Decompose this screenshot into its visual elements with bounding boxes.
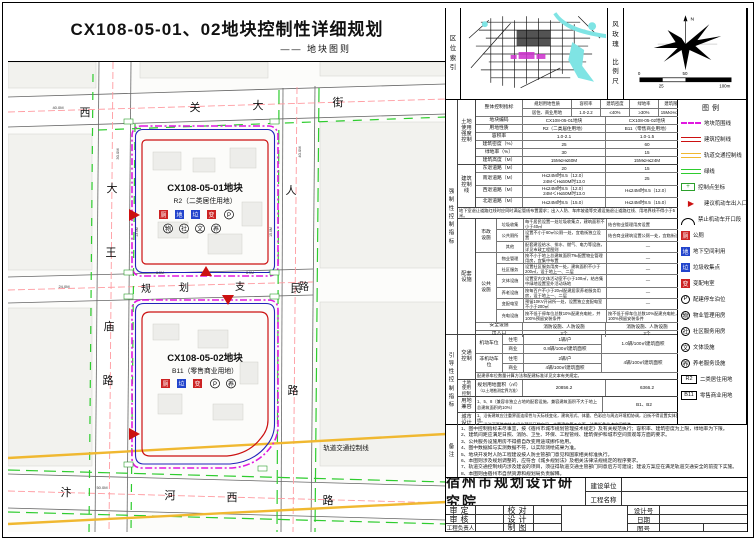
svg-text:B11（零售商业用地）: B11（零售商业用地） <box>172 366 238 375</box>
group-traffic: 交通控制 机动车位 住宅1辆/户 商业0.8辆/100㎡建筑面积 1.0辆/10… <box>458 335 679 380</box>
title-box: CX108-05-01、02地块控制性详细规划 —— 地块图则 <box>8 8 446 62</box>
legend-item: 养养老服务设施 <box>680 355 744 371</box>
legend-item: 地地下空间利用 <box>680 243 744 259</box>
svg-text:物: 物 <box>165 225 171 233</box>
svg-text:划: 划 <box>179 281 189 294</box>
circle-icon: 物 <box>681 311 690 320</box>
group-landuse: 土地使用控制 规划用地面积（㎡）（以土地勘测定界为准） 20856.26366.… <box>458 380 679 397</box>
group-facilities: 配套设施 市政设施 垃圾收集每千居民设置一处垃圾收集点，建筑面积不小于40㎡结合… <box>458 219 679 337</box>
legend-item: 物物业管理用房 <box>680 307 744 323</box>
svg-text:CX108-05-02地块: CX108-05-02地块 <box>167 352 243 364</box>
svg-text:庙: 庙 <box>104 319 115 333</box>
svg-text:关: 关 <box>190 100 201 114</box>
sq-red-icon: 厕 <box>681 231 690 240</box>
proof-label: 校对 <box>504 506 534 515</box>
svg-text:养: 养 <box>213 225 219 233</box>
sq-blue-icon: 地 <box>681 247 690 256</box>
location-minimap <box>461 8 607 98</box>
legend-item-label: 控制点坐标 <box>698 183 725 191</box>
legend-item-label: 禁止机动车开口段 <box>698 215 741 223</box>
svg-text:24.0M: 24.0M <box>58 284 69 289</box>
sq-red-icon: 变 <box>681 279 690 288</box>
strip-mandatory: 强制性控制指标 <box>446 100 458 334</box>
legend-item: 垃垃圾收集点 <box>680 259 744 275</box>
sq-blue-icon: 垃 <box>681 263 690 272</box>
legend-items: 地块范围线建筑控制线轨道交通控制线绿线+控制点坐标▶建议机动车出入口禁止机动车开… <box>680 115 744 403</box>
legend-item-label: 配建停车泊位 <box>693 295 725 303</box>
legend-item: +控制点坐标 <box>680 179 744 195</box>
north-label: N <box>690 16 694 22</box>
legend-item-label: 绿线 <box>704 167 715 175</box>
legend-item: P配建停车泊位 <box>680 291 744 307</box>
sheet-no-label: 图号 <box>628 524 660 532</box>
svg-text:15.0M: 15.0M <box>269 227 273 237</box>
svg-text:养: 养 <box>228 380 234 388</box>
location-index-panel: 区位索引 <box>446 8 608 100</box>
legend-item: 厕公厕 <box>680 227 744 243</box>
svg-text:变: 变 <box>194 380 200 388</box>
legend-item: B11零售商业用地 <box>680 387 744 403</box>
svg-text:路: 路 <box>288 384 299 397</box>
rail-line-icon <box>681 153 701 158</box>
legend-item-label: 建筑控制线 <box>704 135 731 143</box>
windrose-graphic: N 0 50 25 100m <box>624 8 746 98</box>
project-label: 工程名称 <box>586 492 622 506</box>
legend-item-label: 变配电室 <box>693 279 715 287</box>
svg-text:路: 路 <box>103 374 114 387</box>
proof-value <box>534 506 562 515</box>
svg-text:河: 河 <box>165 489 176 502</box>
remarks-list: 1、图中控制指标未尽事宜，按《宿州市城市规划管理技术规定》及有关规范执行；容积率… <box>458 425 747 477</box>
svg-text:30.0M: 30.0M <box>115 148 120 159</box>
legend-item-label: 物业管理用房 <box>693 311 725 319</box>
svg-text:P: P <box>227 213 231 219</box>
legend-item-label: 养老服务设施 <box>693 359 725 367</box>
plan-sheet: { "title": {"main": "CX108-05-01、02地块控制性… <box>0 0 756 540</box>
date-value <box>660 515 747 524</box>
svg-text:50: 50 <box>683 71 688 76</box>
svg-text:垃: 垃 <box>178 380 184 388</box>
svg-text:厕: 厕 <box>162 381 168 388</box>
svg-text:文: 文 <box>197 225 203 233</box>
strip-guiding: 引导性控制指标 <box>446 335 458 426</box>
svg-text:8.5M: 8.5M <box>246 271 254 275</box>
plan-map: 西关 大街 大王 庙路 规划 支路 人民 路 汴河 西路 轨道交通控制线 CX1… <box>8 62 446 532</box>
circle-icon: 社 <box>681 327 690 336</box>
sheet-no-value <box>660 524 704 532</box>
remark-line: 7、轨道交通控制线内涉及建设的项目，须征得轨道交通主管部门同意后方可建设；建设方… <box>461 465 744 471</box>
svg-text:西: 西 <box>227 492 238 504</box>
page-subtitle: —— 地块图则 <box>280 42 351 55</box>
review-label: 审核 <box>446 515 476 524</box>
rail-line-label: 轨道交通控制线 <box>323 443 369 452</box>
legend-item: 绿线 <box>680 163 744 179</box>
location-index-label: 区位索引 <box>446 8 461 99</box>
remark-line: 8、本图则由宿州市自然资源和规划局负责解释。 <box>461 472 744 477</box>
legend-item-label: 社区服务用房 <box>693 327 725 335</box>
svg-text:50.0M: 50.0M <box>96 485 107 490</box>
legend-item: 建筑控制线 <box>680 131 744 147</box>
legend-item: 轨道交通控制线 <box>680 147 744 163</box>
svg-text:地: 地 <box>176 211 182 219</box>
institute-name: 宿州市规划设计研究院 <box>446 478 586 506</box>
lead-value <box>476 524 504 532</box>
legend-title: 图例 <box>680 103 744 113</box>
svg-text:社: 社 <box>181 225 187 233</box>
title-block: 宿州市规划设计研究院 建设单位 工程名称 审定校对 审核设计 工程负责人制图 设… <box>446 478 747 532</box>
svg-text:大: 大 <box>253 98 264 112</box>
legend-item-label: 二类居住用地 <box>700 375 732 383</box>
code-icon: R2 <box>681 375 697 384</box>
review-value <box>476 515 504 524</box>
svg-text:变: 变 <box>208 211 214 219</box>
lead-label: 工程负责人 <box>446 524 476 532</box>
svg-text:王: 王 <box>106 247 117 259</box>
sheet-no-value-2 <box>704 524 747 532</box>
legend-item-label: 轨道交通控制线 <box>704 151 742 159</box>
circle-icon: 养 <box>681 359 690 368</box>
date-label: 日期 <box>628 515 660 524</box>
page-title: CX108-05-01、02地块控制性详细规划 <box>8 15 446 40</box>
svg-text:垃: 垃 <box>192 211 198 219</box>
draft-label: 制图 <box>504 524 534 532</box>
legend-item-label: 建议机动车出入口 <box>704 199 747 207</box>
legend-item-label: 公厕 <box>693 231 704 239</box>
strip-remarks: 备注 <box>446 425 458 477</box>
green-line-icon <box>681 169 701 174</box>
row-label: 整体控制指标 <box>476 100 523 116</box>
design-value <box>534 515 562 524</box>
svg-text:厕: 厕 <box>160 212 166 219</box>
code-icon: B11 <box>681 391 697 400</box>
approve-value <box>476 506 504 515</box>
svg-text:路: 路 <box>323 494 334 507</box>
no-opening-icon <box>681 218 695 225</box>
svg-text:民: 民 <box>291 283 302 295</box>
svg-text:支: 支 <box>235 281 245 293</box>
setback-note-row: 地下室退让道路红线时应同时满足管线布置要求；出入人防、车库坡道等交通设施退让道路… <box>458 208 679 219</box>
design-no-label: 设计号 <box>628 506 660 515</box>
svg-text:规: 规 <box>141 282 151 295</box>
design-no-value <box>660 506 747 515</box>
owner-label: 建设单位 <box>586 478 622 492</box>
legend-item-label: 零售商业用地 <box>700 391 732 399</box>
svg-text:西: 西 <box>80 107 91 119</box>
design-label: 设计 <box>504 515 534 524</box>
legend-item-label: 文体设施 <box>693 343 715 351</box>
svg-text:P: P <box>213 382 217 388</box>
legend-item: 禁止机动车开口段 <box>680 211 744 227</box>
svg-text:40.0M: 40.0M <box>52 105 63 110</box>
svg-text:大: 大 <box>107 181 118 195</box>
legend-panel: 图例 地块范围线建筑控制线轨道交通控制线绿线+控制点坐标▶建议机动车出入口禁止机… <box>678 100 747 425</box>
legend-item: 变变配电室 <box>680 275 744 291</box>
group-setback: 建筑控制线 东退道路（M）2015 南退道路（M）H≤24M时8.5（12.0）… <box>458 165 679 208</box>
svg-text:13.0M: 13.0M <box>135 227 139 237</box>
svg-text:R2（二类居住用地）: R2（二类居住用地） <box>173 196 236 205</box>
draft-value <box>534 524 562 532</box>
windrose-panel: 风玫瑰比例尺 N 0 50 25 100m <box>608 8 747 100</box>
svg-text:CX108-05-01地块: CX108-05-01地块 <box>167 182 243 194</box>
control-indicator-table: 强制性控制指标 土地使用强度控制 整体控制指标 规划用地性质居住、商业用地 容积… <box>446 100 678 425</box>
windrose-scale-label: 风玫瑰比例尺 <box>608 8 624 99</box>
project-value <box>622 492 747 506</box>
owner-value <box>622 478 747 492</box>
svg-text:100m: 100m <box>719 84 730 89</box>
circle-icon: 文 <box>681 343 690 352</box>
svg-text:汴: 汴 <box>61 485 72 499</box>
svg-text:25: 25 <box>659 84 664 89</box>
entrance-icon: ▶ <box>681 198 701 208</box>
svg-text:人: 人 <box>286 184 297 197</box>
legend-item-label: 地下空间利用 <box>693 247 725 255</box>
legend-item-label: 垃圾收集点 <box>693 263 720 271</box>
building-line-icon <box>681 137 701 142</box>
group-intensity: 土地使用强度控制 整体控制指标 规划用地性质居住、商业用地 容积率1.0-2.2… <box>458 100 679 165</box>
table-row: 整体控制指标 规划用地性质居住、商业用地 容积率1.0-2.2 建筑密度≤40%… <box>476 100 688 117</box>
minimap-dense-area <box>517 30 551 46</box>
circle-icon: P <box>681 295 690 304</box>
legend-item-label: 地块范围线 <box>704 119 731 127</box>
group-compat: 用地兼容 1、5、8（兼容非独立占地的配套设施，兼容建筑面积不大于地上总建筑面积… <box>458 397 679 413</box>
svg-text:40.0M: 40.0M <box>297 146 302 157</box>
control-point-icon: + <box>681 183 695 191</box>
legend-item: ▶建议机动车出入口 <box>680 195 744 211</box>
legend-item: 社社区服务用房 <box>680 323 744 339</box>
legend-item: 地块范围线 <box>680 115 744 131</box>
svg-text:街: 街 <box>333 95 344 109</box>
remarks-panel: 备注 1、图中控制指标未尽事宜，按《宿州市城市规划管理技术规定》及有关规范执行；… <box>446 425 747 478</box>
legend-item: R2二类居住用地 <box>680 371 744 387</box>
svg-text:8.5M: 8.5M <box>156 271 164 275</box>
parcel-line-icon <box>681 122 701 124</box>
legend-item: 文文体设施 <box>680 339 744 355</box>
approve-label: 审定 <box>446 506 476 515</box>
